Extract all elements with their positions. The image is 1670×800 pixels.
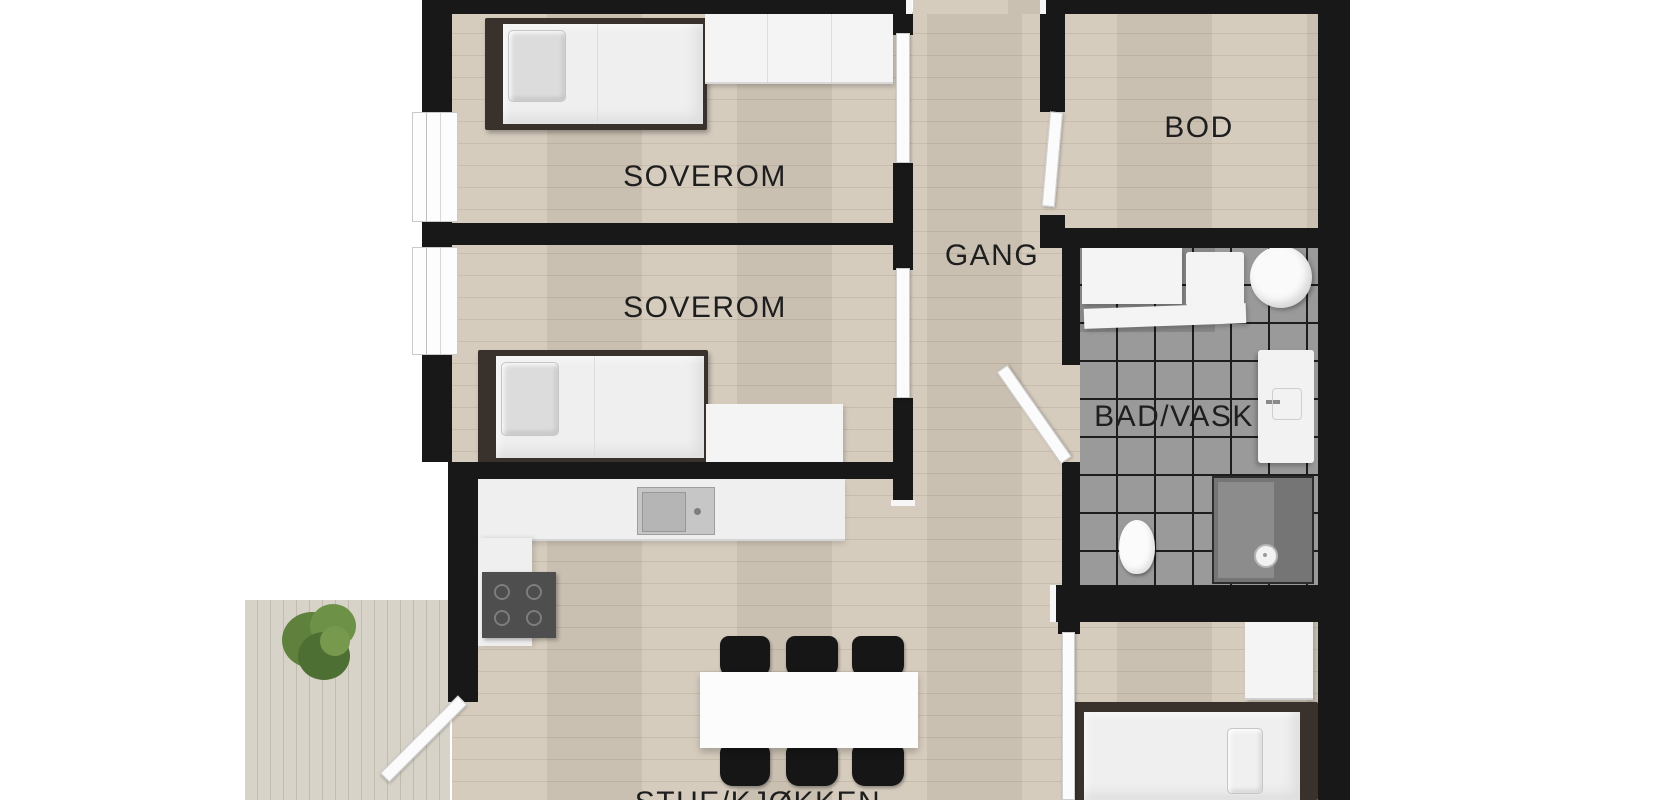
- pillow: [1227, 728, 1263, 794]
- door-bedroom3: [1062, 632, 1075, 800]
- stove: [482, 572, 556, 638]
- duvet-fold: [594, 356, 595, 458]
- wall-bath-bottom: [1056, 585, 1350, 622]
- wall-bod-west: [1040, 0, 1065, 112]
- wall-bedroom-divider: [422, 223, 913, 245]
- room-label-hallway: GANG: [917, 239, 1067, 273]
- kitchen-sink: [637, 487, 715, 535]
- door-bedroom1: [896, 33, 910, 163]
- wardrobe: [1245, 610, 1313, 700]
- plant: [276, 602, 362, 684]
- burner: [526, 584, 542, 600]
- wall-left-upper: [422, 0, 452, 112]
- door-jamb: [1050, 585, 1056, 622]
- toilet: [1119, 520, 1155, 574]
- burner: [526, 610, 542, 626]
- door-jamb: [1040, 0, 1046, 14]
- dresser: [706, 404, 843, 462]
- wall-left-living: [448, 462, 478, 702]
- dining-chair: [786, 744, 838, 786]
- room-label-bathroom: BAD/VASK: [1054, 400, 1294, 434]
- dining-chair: [720, 744, 770, 786]
- room-label-living-kitchen: STUE/KJØKKEN: [608, 786, 908, 800]
- sink-faucet: [694, 508, 701, 515]
- door-jamb: [891, 500, 915, 506]
- wardrobe-seam: [831, 14, 832, 82]
- window: [412, 112, 458, 222]
- floor-plan: SOVEROM SOVEROM GANG BOD BAD/VASK STUE/K…: [0, 0, 1670, 800]
- wardrobe: [705, 14, 893, 84]
- water-heater: [1250, 246, 1312, 308]
- room-label-storage: BOD: [1124, 111, 1274, 145]
- window: [412, 247, 458, 355]
- door-bedroom2: [896, 268, 910, 398]
- entrance-floor-strip: [913, 0, 1040, 14]
- burner: [494, 610, 510, 626]
- wall-bod-bottom: [1040, 228, 1350, 248]
- bathroom-counter: [1082, 248, 1182, 304]
- room-label-bedroom1: SOVEROM: [605, 160, 805, 194]
- plant-foliage: [320, 626, 350, 656]
- wall-hall-b: [893, 163, 913, 270]
- wall-left-lower: [422, 355, 452, 462]
- room-label-bedroom2: SOVEROM: [605, 291, 805, 325]
- sink-basin: [642, 492, 686, 532]
- bed-mattress: [1084, 712, 1300, 800]
- wall-top-left: [422, 0, 912, 14]
- wall-top-right: [1040, 0, 1350, 14]
- pillow: [501, 362, 559, 436]
- door-jamb: [906, 0, 912, 14]
- shower: [1212, 476, 1314, 584]
- dining-table: [700, 672, 918, 748]
- wall-right-exterior: [1318, 0, 1350, 800]
- washing-machine: [1186, 252, 1244, 306]
- dining-chair: [852, 744, 904, 786]
- burner: [494, 584, 510, 600]
- shower-head: [1254, 544, 1278, 568]
- duvet-fold: [597, 24, 598, 124]
- wall-bedroom2-kitchen: [448, 462, 913, 479]
- pillow: [508, 30, 566, 102]
- wall-hall-c: [893, 398, 913, 500]
- wall-hall-a: [893, 14, 913, 35]
- wall-bath-west-lower: [1062, 462, 1080, 585]
- wardrobe-seam: [767, 14, 768, 82]
